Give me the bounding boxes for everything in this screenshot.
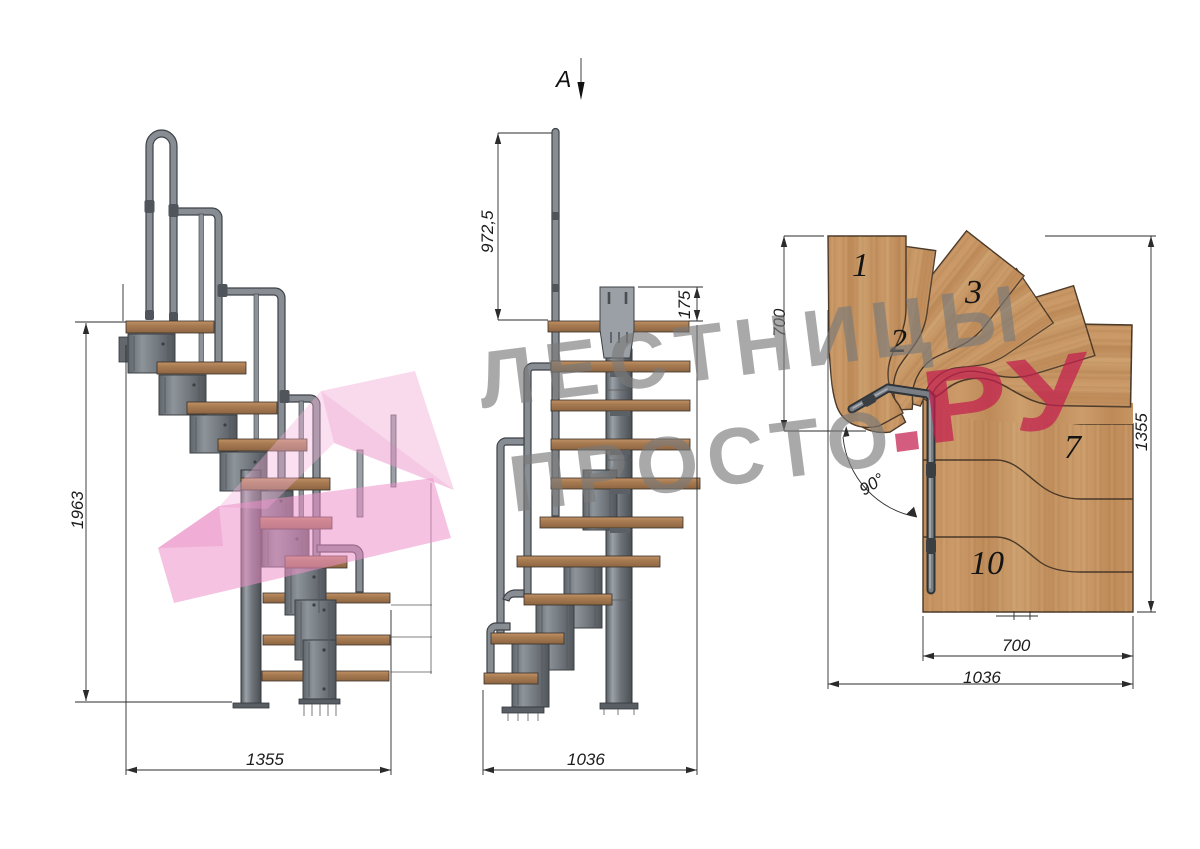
svg-text:1963: 1963 [68,491,87,529]
svg-text:A: A [554,66,571,92]
svg-text:972,5: 972,5 [478,210,497,253]
svg-text:1036: 1036 [963,668,1001,687]
svg-text:10: 10 [970,545,1004,582]
svg-text:1355: 1355 [246,750,284,769]
svg-text:1: 1 [852,247,869,284]
svg-text:700: 700 [1002,636,1031,655]
svg-text:1355: 1355 [1132,413,1151,451]
svg-text:1036: 1036 [567,750,605,769]
